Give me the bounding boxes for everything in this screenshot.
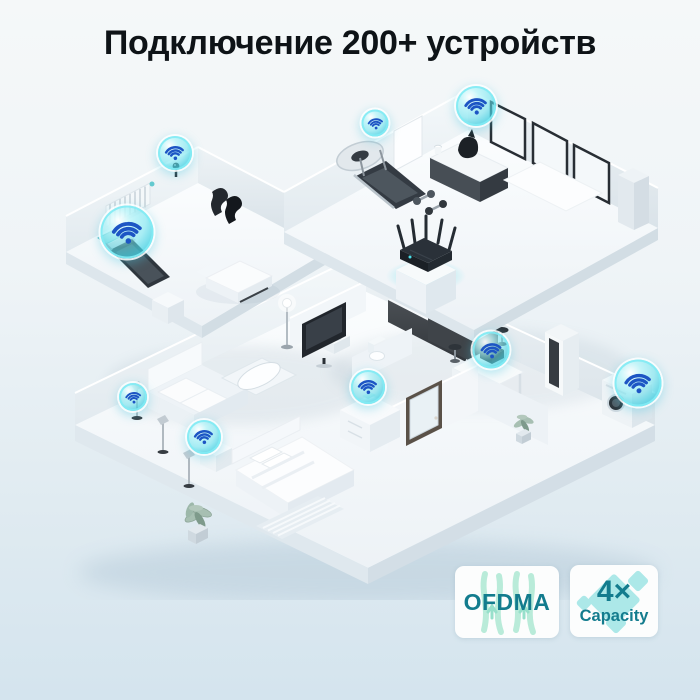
router-led [409, 256, 412, 259]
capacity-badge: 4× Capacity [570, 565, 658, 637]
banner-title: Подключение 200+ устройств [0, 24, 700, 63]
capacity-value: 4× [597, 577, 631, 607]
wardrobe [545, 324, 579, 396]
ofdma-label: OFDMA [464, 589, 551, 616]
capacity-label: Capacity [580, 608, 649, 625]
house-floorplan-illustration [0, 80, 700, 600]
capacity-text: 4× Capacity [580, 577, 649, 625]
ofdma-badge: OFDMA [455, 566, 559, 638]
corner-column [618, 168, 649, 230]
router-unit [386, 216, 466, 314]
product-banner: Подключение 200+ устройств [0, 0, 700, 700]
potted-plant [183, 501, 212, 544]
